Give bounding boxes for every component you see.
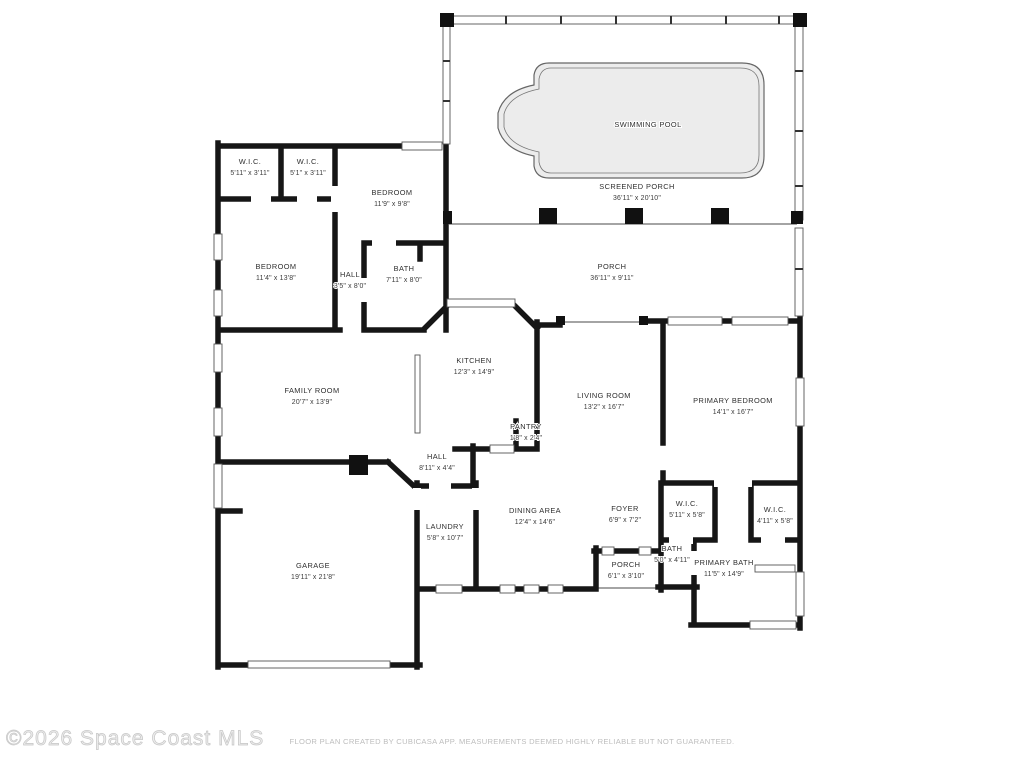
room-labels: SWIMMING POOL SCREENED PORCH 36'11" x 20… [230,120,793,581]
mullion [778,16,780,24]
mullion [670,16,672,24]
mullion [615,16,617,24]
sliding-door [668,317,722,325]
label-wic-2: W.I.C. [297,157,320,166]
label-kitchen: KITCHEN [456,356,491,365]
label-bedroom-upper: BEDROOM [372,188,413,197]
dims-laundry: 5'8" x 10'7" [427,535,464,542]
label-laundry: LAUNDRY [426,522,464,531]
porch-post [556,316,565,325]
label-porch-rear: PORCH [598,262,627,271]
dims-wic-1: 5'11" x 3'11" [230,170,270,177]
dims-kitchen: 12'3" x 14'9" [454,369,495,376]
door-opening [413,488,421,510]
window [214,344,222,372]
porch-post [791,211,803,224]
dims-garage: 19'11" x 21'8" [291,574,335,581]
label-bath-lower: BATH [662,544,683,553]
window [524,585,539,593]
door-opening [297,195,317,203]
window [436,585,462,593]
window [449,16,795,24]
dims-primary-bedroom: 14'1" x 16'7" [713,409,754,416]
label-bath-upper: BATH [394,264,415,273]
dims-wic-3: 5'11" x 5'8" [669,512,705,519]
window [447,299,515,307]
door-opening [360,278,368,302]
disclaimer-text: FLOOR PLAN CREATED BY CUBICASA APP. MEAS… [290,737,735,746]
label-wic-1: W.I.C. [239,157,262,166]
window [214,234,222,260]
window [500,585,515,593]
label-bedroom-left: BEDROOM [256,262,297,271]
dims-porch-rear: 36'11" x 9'11" [590,275,634,282]
mullion [795,130,803,132]
window [548,585,563,593]
dims-bedroom-left: 11'4" x 13'8" [256,275,296,282]
dims-bedroom-upper: 11'9" x 9'8" [374,201,410,208]
mullion [505,16,507,24]
label-hall-upper: HALL [340,270,360,279]
window [796,378,804,426]
mullion [725,16,727,24]
door-opening [429,482,451,490]
dims-hall-upper: 3'5" x 8'0" [334,283,367,290]
dims-wic-2: 5'1" x 3'11" [290,170,326,177]
label-wic-3: W.I.C. [676,499,699,508]
vanity-fixture [755,565,795,572]
label-foyer: FOYER [611,504,638,513]
label-primary-bath: PRIMARY BATH [694,558,753,567]
window [795,24,803,220]
label-family-room: FAMILY ROOM [284,386,339,395]
floor-plan-page: SWIMMING POOL SCREENED PORCH 36'11" x 20… [0,0,1024,768]
dims-family-room: 20'7" x 13'9" [292,399,333,406]
mullion [795,268,803,270]
window [402,142,442,150]
label-pantry: PANTRY [510,422,542,431]
dims-primary-bath: 11'5" x 14'9" [704,571,744,578]
porch-post [639,316,648,325]
window [639,547,651,555]
window [795,228,803,316]
dims-dining-area: 12'4" x 14'6" [515,519,556,526]
window [214,290,222,316]
door-opening [714,479,752,487]
label-porch-front: PORCH [612,560,641,569]
mullion [795,185,803,187]
mullion [795,70,803,72]
label-swimming-pool: SWIMMING POOL [614,120,681,129]
window [490,445,514,453]
window [732,317,788,325]
door-opening [251,195,271,203]
watermark-text: ©2026 Space Coast MLS [6,727,264,750]
window [214,408,222,436]
label-living-room: LIVING ROOM [577,391,631,400]
label-wic-4: W.I.C. [764,505,787,514]
label-hall-lower: HALL [427,452,447,461]
dims-bath-upper: 7'11" x 8'0" [386,277,422,284]
dims-wic-4: 4'11" x 5'8" [757,518,793,525]
dims-pantry: 1'8" x 2'4" [510,435,543,442]
label-primary-bedroom: PRIMARY BEDROOM [693,396,773,405]
mullion [443,60,450,62]
label-garage: GARAGE [296,561,330,570]
dims-hall-lower: 8'11" x 4'4" [419,465,455,472]
door-opening [761,536,785,544]
fireplace-block [349,455,368,475]
dims-porch-front: 6'1" x 3'10" [608,573,645,580]
dims-living-room: 13'2" x 16'7" [584,404,625,411]
label-dining-area: DINING AREA [509,506,561,515]
mullion [443,100,450,102]
door-opening [372,239,396,247]
label-screened-porch: SCREENED PORCH [599,182,674,191]
corner-post [793,13,807,27]
porch-post [711,208,729,224]
porch-post [539,208,557,224]
door-opening [331,186,339,212]
window [214,464,222,508]
window [750,621,796,629]
front-door [602,547,614,555]
kitchen-counter [415,355,420,433]
floor-plan: SWIMMING POOL SCREENED PORCH 36'11" x 20… [0,0,1024,768]
footer: ©2026 Space Coast MLS FLOOR PLAN CREATED… [6,727,734,750]
dims-screened-porch: 36'11" x 20'10" [613,195,661,202]
dims-bath-lower: 5'0" x 4'11" [654,557,690,564]
porch-post [625,208,643,224]
porch-post [443,211,452,224]
dims-foyer: 6'9" x 7'2" [609,517,642,524]
door-opening [472,488,480,510]
window [443,24,450,144]
door-opening [669,536,693,544]
corner-post [440,13,454,27]
garage-door [248,661,390,668]
mullion [560,16,562,24]
window [796,572,804,616]
